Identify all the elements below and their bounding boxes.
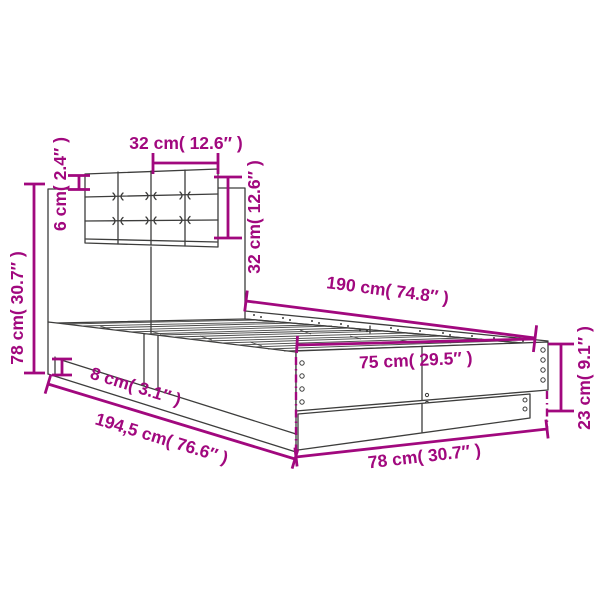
bed-dimension-diagram: 32 cm( 12.6″ ) 6 cm( 2.4″ ) 78 cm( 30.7″…: [0, 0, 600, 600]
dimension-diagram-canvas: 32 cm( 12.6″ ) 6 cm( 2.4″ ) 78 cm( 30.7″…: [0, 0, 600, 600]
dim-headboard-cushion-width-label: 32 cm( 12.6″ ): [129, 133, 242, 153]
dim-headboard-cushion-height-label: 32 cm( 12.6″ ): [244, 160, 264, 273]
dim-frame-height-label: 23 cm( 9.1″ ): [574, 326, 594, 430]
measure-headboard-cushion-height: 32 cm( 12.6″ ): [214, 160, 264, 273]
dim-bed-length-label: 190 cm( 74.8″ ): [325, 272, 450, 307]
dim-frame-outer-width-label: 78 cm( 30.7″ ): [367, 440, 482, 473]
measure-headboard-cushion-width: 32 cm( 12.6″ ): [129, 133, 242, 174]
dim-plinth-height-label: 8 cm( 3.1″ ): [88, 363, 184, 410]
measure-cushion-top-offset: 6 cm( 2.4″ ): [50, 137, 90, 231]
measure-headboard-height: 78 cm( 30.7″ ): [7, 184, 45, 373]
headboard-cushion: [85, 169, 218, 247]
measure-frame-height: 23 cm( 9.1″ ): [547, 326, 594, 430]
headboard-leg: [144, 247, 158, 390]
measure-plinth-height: 8 cm( 3.1″ ): [52, 359, 184, 410]
bed-line-art: [48, 169, 548, 452]
dim-cushion-top-offset-label: 6 cm( 2.4″ ): [50, 137, 70, 231]
dim-headboard-height-label: 78 cm( 30.7″ ): [7, 251, 27, 364]
